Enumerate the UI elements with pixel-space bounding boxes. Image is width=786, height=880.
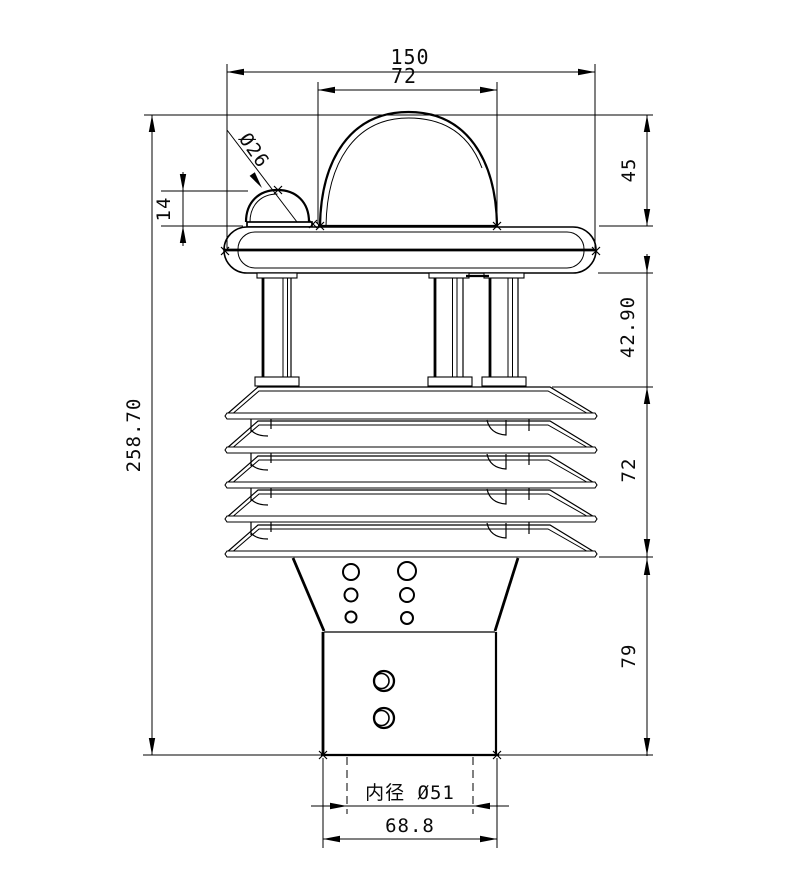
vent-hole <box>400 588 414 602</box>
screw-hole-inner <box>374 711 389 726</box>
louver-plate <box>225 490 597 522</box>
left-column-top-flange <box>257 273 297 278</box>
funnel-right-edge <box>495 558 518 631</box>
dim-dome-height: 45 <box>618 158 640 183</box>
louver-plate <box>225 456 597 488</box>
louver-stack <box>225 387 597 557</box>
dim-louver-section-height: 72 <box>618 458 640 483</box>
large-dome-outline <box>320 112 497 226</box>
funnel-vent-holes <box>343 562 416 624</box>
vent-hole <box>343 564 359 580</box>
middle-column-foot <box>428 377 472 386</box>
dim-total-height: 258.70 <box>123 398 145 473</box>
left-column-foot <box>255 377 299 386</box>
dim-dome-width: 72 <box>391 64 417 88</box>
large-dome <box>320 112 497 226</box>
screw-hole-inner <box>374 674 389 689</box>
funnel-left-edge <box>293 558 324 631</box>
louver-plate <box>225 525 597 557</box>
dim-base-section-height: 79 <box>618 644 640 669</box>
technical-drawing-page: 150 72 258.70 14 Ø26 45 42.90 72 79 内径 Ø… <box>0 0 786 880</box>
mounting-tube <box>321 632 499 755</box>
dim-inner-diameter: 内径 Ø51 <box>365 782 455 804</box>
right-column-top-flange <box>484 273 524 278</box>
funnel-section <box>293 558 518 631</box>
vent-hole <box>401 612 413 624</box>
small-dome-outline <box>246 190 309 222</box>
vent-hole <box>346 612 357 623</box>
dim-column-section-height: 42.90 <box>617 296 639 358</box>
tube-screw-holes <box>374 671 394 728</box>
louver-plate <box>225 387 597 419</box>
dim-small-dome-diameter: Ø26 <box>234 129 273 172</box>
weather-sensor-dimension-drawing: 150 72 258.70 14 Ø26 45 42.90 72 79 内径 Ø… <box>0 0 786 880</box>
top-cap <box>224 226 596 273</box>
dim-base-outer-width: 68.8 <box>385 815 435 837</box>
louver-plate <box>225 421 597 453</box>
right-column-foot <box>482 377 526 386</box>
middle-column-top-flange <box>429 273 469 278</box>
dim-small-dome-height: 14 <box>153 197 175 222</box>
support-columns <box>255 273 526 386</box>
small-dome <box>246 190 312 227</box>
large-dome-inner-line <box>326 118 482 226</box>
vent-hole <box>345 589 358 602</box>
vent-hole <box>398 562 416 580</box>
